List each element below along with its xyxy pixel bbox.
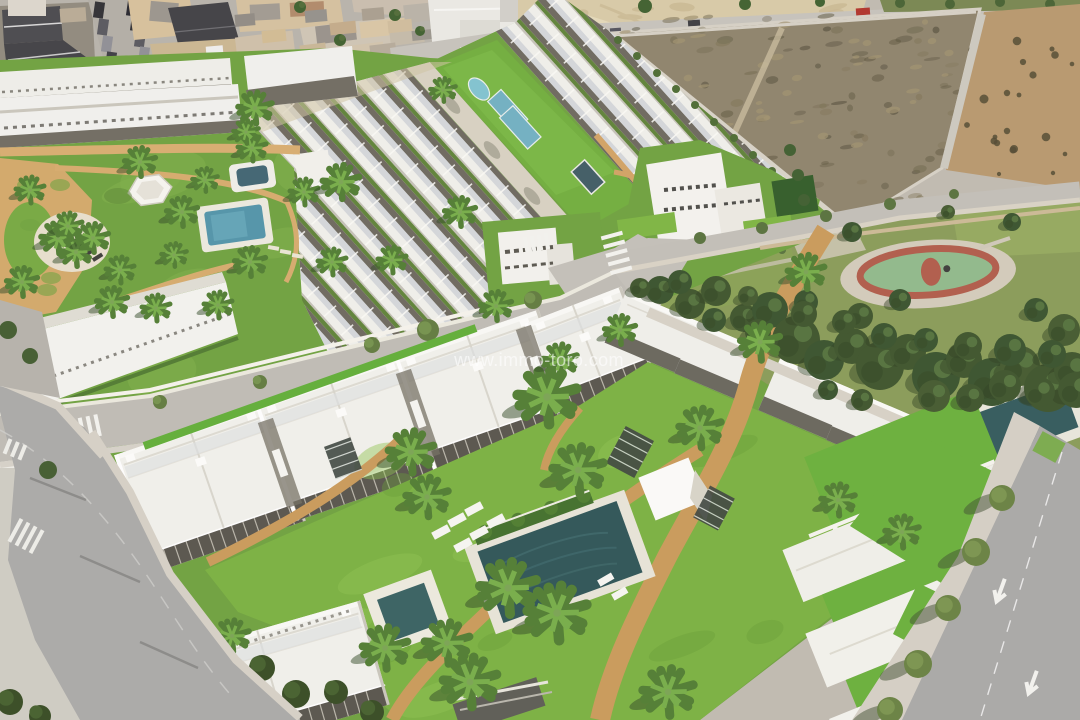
svg-text:www.immo-toro.com: www.immo-toro.com <box>453 350 624 370</box>
